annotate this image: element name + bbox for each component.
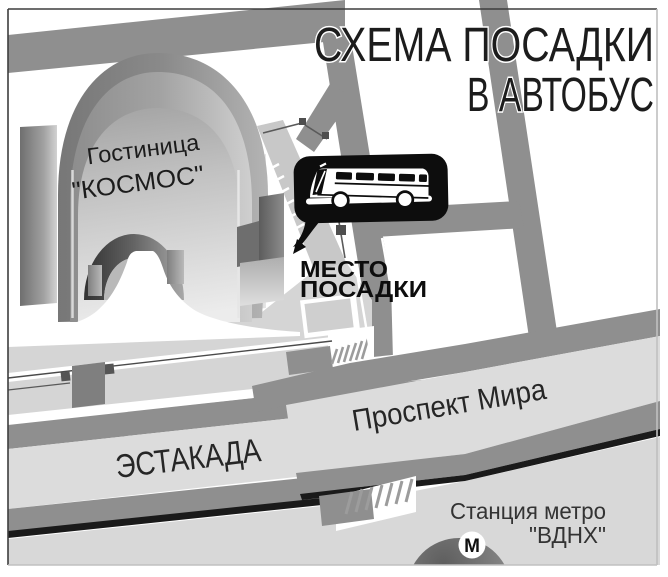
svg-text:"ВДНХ": "ВДНХ"	[529, 522, 606, 548]
svg-text:СХЕМА ПОСАДКИ: СХЕМА ПОСАДКИ	[314, 19, 654, 72]
svg-text:Станция метро: Станция метро	[450, 498, 606, 524]
svg-text:М: М	[464, 536, 480, 557]
svg-text:В АВТОБУС: В АВТОБУС	[467, 69, 654, 122]
svg-text:ПОСАДКИ: ПОСАДКИ	[300, 276, 427, 302]
